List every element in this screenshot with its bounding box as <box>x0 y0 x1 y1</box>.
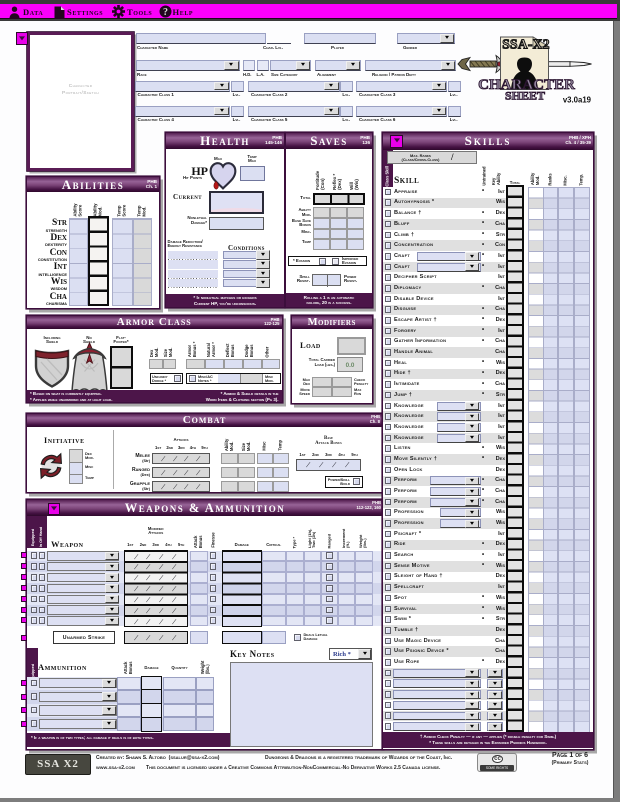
svg-text:SHEET: SHEET <box>505 89 545 103</box>
svg-text:v3.0a19: v3.0a19 <box>563 96 592 105</box>
svg-text:?: ? <box>163 7 168 18</box>
svg-text:SSA-X2: SSA-X2 <box>502 37 550 52</box>
